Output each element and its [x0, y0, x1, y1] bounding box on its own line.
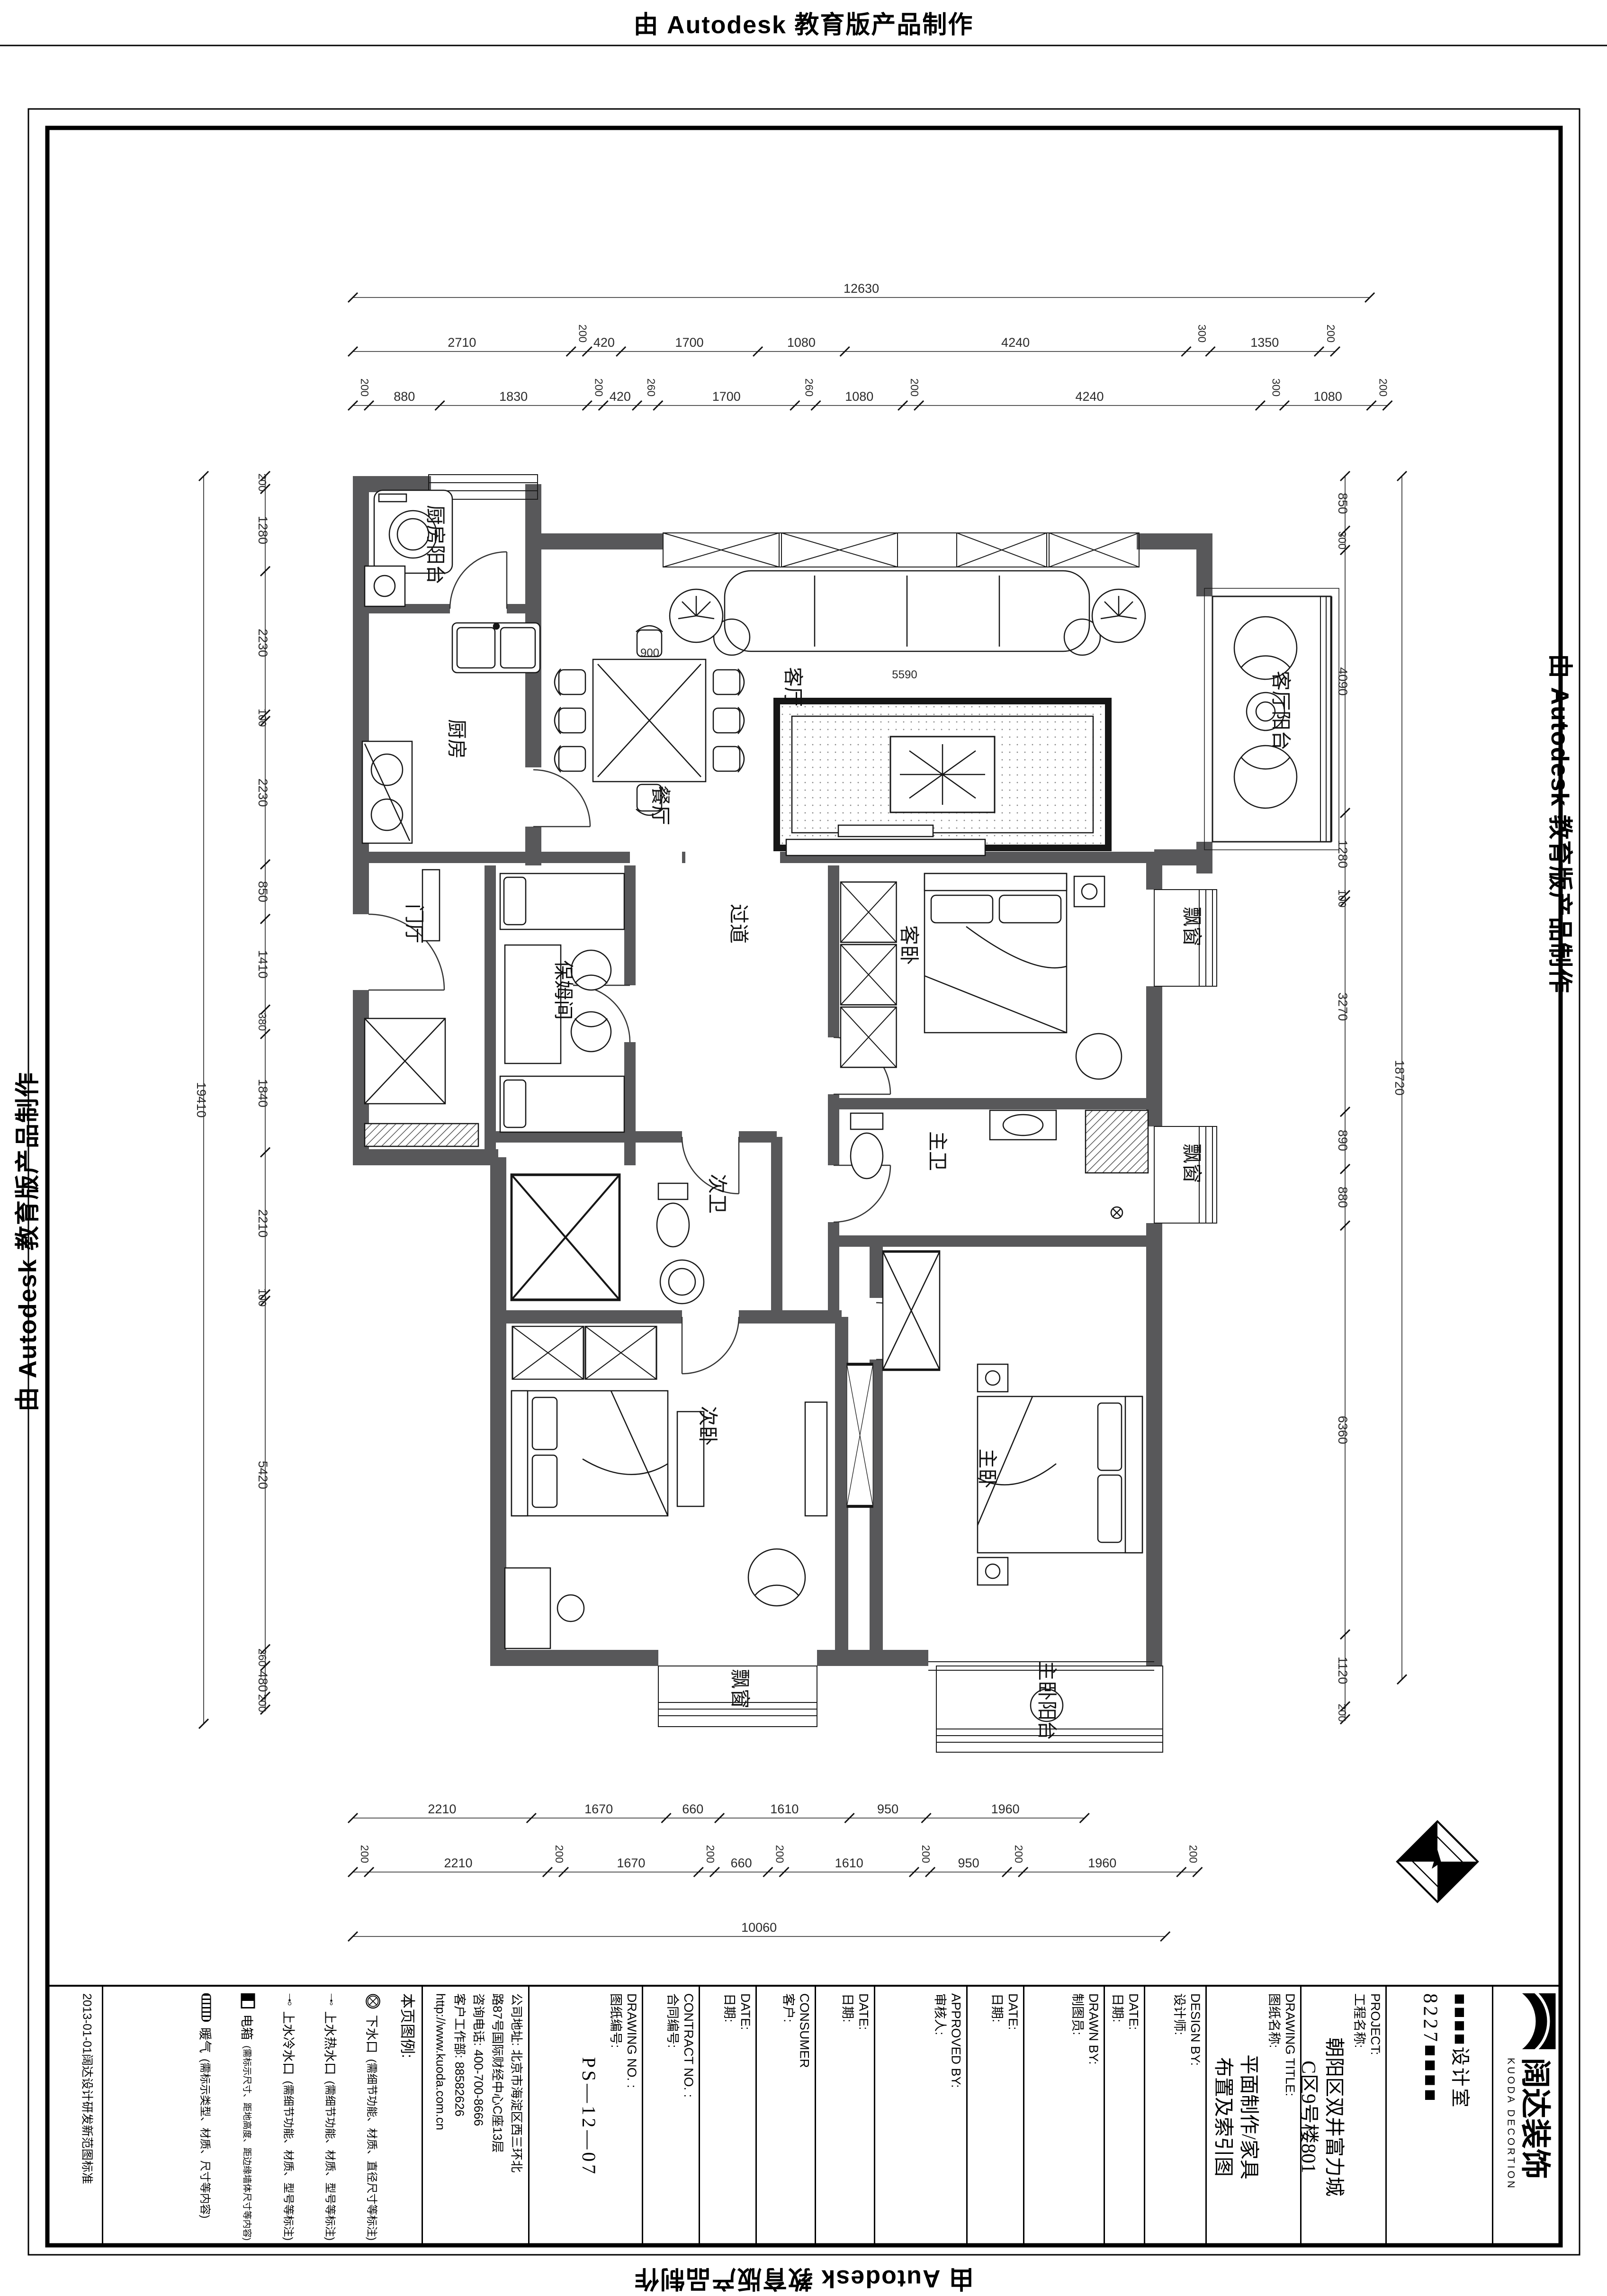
svg-text:200: 200 — [256, 1694, 269, 1712]
svg-text:660: 660 — [731, 1856, 752, 1870]
compass-mark — [1397, 1821, 1478, 1902]
svg-text:5420: 5420 — [256, 1461, 270, 1489]
tb-studio-cell: ■■■■设计室 8227■■■■ — [1385, 1987, 1492, 2247]
plan-annotation: 900 — [640, 647, 659, 659]
room-label-master-bedroom: 主卧 — [976, 1449, 998, 1488]
svg-text:880: 880 — [394, 389, 415, 404]
room-label-bay-window-1: 飘窗 — [1181, 907, 1203, 946]
room-label-bay-window-2: 飘窗 — [1181, 1143, 1203, 1183]
second-bath-fixtures — [657, 1183, 704, 1304]
svg-text:4240: 4240 — [1001, 335, 1030, 350]
tb-approved-cell: APPROVED BY: 审核人: — [874, 1987, 966, 2247]
tb-legend-cell: 本页图例: 下水口 (需细节功能、材质、直径尺寸等标注) 上水热水口 (需细节功… — [102, 1987, 422, 2247]
svg-text:200: 200 — [553, 1845, 566, 1863]
date-label-cn: 日期: — [1110, 1993, 1126, 2241]
tb-project-cell: PROJECT: 工程名称: 朝阳区双井富力城 C区9号楼801 — [1300, 1987, 1385, 2247]
kitchen-sink — [452, 623, 540, 673]
room-label-kitchen: 厨房 — [446, 719, 468, 759]
svg-text:1700: 1700 — [712, 389, 741, 404]
room-label-dining: 餐厅 — [649, 785, 672, 825]
tb-date-cell-4: DATE: 日期: — [1104, 1987, 1144, 2247]
svg-text:850: 850 — [256, 881, 270, 902]
room-label-living: 客厅 — [782, 667, 804, 707]
title-block: 2013-01-01阔达设计研发新范图标准 本页图例: 下水口 (需细节功能、材… — [47, 1985, 1561, 2247]
design-by-label-en: DESIGN BY: — [1187, 1993, 1203, 2241]
drawing-sheet: 由 Autodesk 教育版产品制作 由 Autodesk 教育版产品制作 由 … — [0, 0, 1607, 2296]
guest-bedroom-furniture — [841, 873, 1122, 1079]
drawing-title-value-2: 布置及索引图 — [1210, 1993, 1236, 2241]
date-label-en: DATE: — [1126, 1993, 1142, 2241]
svg-text:1410: 1410 — [256, 950, 270, 979]
svg-text:1670: 1670 — [584, 1802, 613, 1816]
svg-text:2230: 2230 — [256, 778, 270, 807]
svg-text:300: 300 — [1196, 324, 1208, 342]
svg-text:260: 260 — [803, 378, 815, 396]
tb-drawing-title-cell: DRAWING TITLE: 图纸名称: 平面制作/家具 布置及索引图 — [1205, 1987, 1300, 2247]
legend-item-note: (需细节功能、材质、型号等标注) — [282, 2081, 298, 2241]
svg-text:660: 660 — [682, 1802, 703, 1816]
room-label-guest-bedroom: 客卧 — [898, 925, 920, 965]
consumer-label-cn: 客户: — [781, 1993, 797, 2241]
svg-text:2710: 2710 — [448, 335, 476, 350]
svg-text:200: 200 — [704, 1845, 717, 1863]
svg-text:200: 200 — [773, 1845, 786, 1863]
legend-item-note: (需细节功能、材质、直径尺寸等标注) — [365, 2059, 381, 2241]
svg-text:100: 100 — [256, 1288, 269, 1306]
company-phone: 咨询电话: 400-700-8666 — [469, 1993, 488, 2241]
svg-text:1610: 1610 — [770, 1802, 799, 1816]
dim-chain-left_chain: 2001280223010022308501410380184022101005… — [256, 471, 270, 1714]
svg-text:200: 200 — [1013, 1845, 1025, 1863]
room-label-living-balcony: 客厅阳台 — [1270, 671, 1292, 750]
legend-item-label: 暖气 — [197, 2027, 215, 2053]
stove — [362, 741, 412, 843]
dim-chain-bottom_mid: 2002210200167020066020016102009502001960… — [348, 1845, 1202, 1877]
studio-line-1: ■■■■设计室 — [1448, 1993, 1476, 2241]
legend-item-electric-box: 电箱 (需标示尺寸、距地高度、距边缘墙体尺寸等内容) — [227, 1993, 269, 2241]
date-label-en: DATE: — [1005, 1993, 1021, 2241]
legend-item-label: 下水口 — [364, 2015, 382, 2053]
company-address-1: 公司地址: 北京市海淀区西三环北 — [507, 1993, 526, 2241]
svg-text:4090: 4090 — [1336, 667, 1350, 696]
drain-icon — [364, 1993, 383, 2009]
dim-chain-left_total: 19410 — [194, 471, 208, 1729]
svg-text:200: 200 — [908, 378, 921, 396]
living-rug — [777, 701, 1108, 848]
svg-text:1960: 1960 — [991, 1802, 1020, 1816]
svg-text:200: 200 — [359, 378, 371, 396]
svg-text:100: 100 — [1336, 889, 1348, 907]
svg-text:4240: 4240 — [1075, 389, 1104, 404]
drawing-title-label-cn: 图纸名称: — [1266, 1993, 1282, 2241]
svg-text:850: 850 — [1336, 493, 1350, 514]
date-label-en: DATE: — [856, 1993, 872, 2241]
drawing-title-value-1: 平面制作/家具 — [1236, 1993, 1261, 2241]
svg-text:1610: 1610 — [835, 1856, 863, 1870]
drawing-no-value: PS—12—07 — [576, 1993, 601, 2241]
plan-annotation: 5590 — [892, 668, 917, 681]
svg-text:1280: 1280 — [256, 516, 270, 544]
svg-text:19410: 19410 — [194, 1082, 208, 1117]
sheet-outer-frame — [28, 109, 1580, 2255]
dim-chain-top_total: 12630 — [348, 281, 1374, 302]
kuoda-logo-icon — [1500, 1993, 1556, 2049]
drawn-label-en: DRAWN BY: — [1086, 1993, 1102, 2241]
svg-text:200: 200 — [1336, 1704, 1348, 1722]
contract-no-label-cn: 合同编号: — [664, 1993, 681, 2241]
svg-text:1700: 1700 — [675, 335, 704, 350]
room-label-second-bath: 次卫 — [706, 1174, 728, 1214]
contract-no-label-en: CONTRACT NO. : — [681, 1993, 697, 2241]
room-label-bay-window-3: 飘窗 — [729, 1669, 751, 1709]
svg-text:10060: 10060 — [741, 1920, 777, 1935]
tb-date-cell-1: DATE: 日期: — [699, 1987, 755, 2247]
sofa — [714, 571, 1100, 655]
room-label-hallway: 过道 — [727, 904, 750, 944]
project-value-1: 朝阳区双井富力城 — [1321, 1993, 1347, 2241]
tb-contract-no-cell: CONTRACT NO. : 合同编号: — [642, 1987, 699, 2247]
second-bedroom-furniture — [505, 1326, 827, 1648]
company-website: http://www.kuoda.com.cn — [431, 1993, 450, 2241]
master-bath-fixtures — [851, 1110, 1148, 1218]
dim-chain-right_total: 18720 — [1392, 471, 1407, 1684]
svg-text:300: 300 — [1336, 531, 1348, 549]
legend-item-cold-water: 上水冷水口 (需细节功能、材质、型号等标注) — [269, 1993, 311, 2241]
tb-company-cell: 公司地址: 北京市海淀区西三环北 路87号国际财经中心C座13层 咨询电话: 4… — [422, 1987, 528, 2247]
svg-text:380: 380 — [256, 1013, 269, 1031]
legend-item-note: (需细节功能、材质、型号等标注) — [323, 2081, 340, 2241]
dim-chain-bottom_outer: 2210167066016109501960 — [348, 1802, 1089, 1823]
tb-drawing-no-cell: DRAWING NO. : 图纸编号: PS—12—07 — [528, 1987, 642, 2247]
svg-text:3270: 3270 — [1336, 992, 1350, 1021]
svg-text:420: 420 — [593, 335, 615, 350]
approved-label-en: APPROVED BY: — [948, 1993, 964, 2241]
svg-text:1670: 1670 — [617, 1856, 645, 1870]
svg-text:12630: 12630 — [844, 281, 879, 296]
tb-consumer-cell: CONSUMER 客户: — [755, 1987, 815, 2247]
svg-text:1830: 1830 — [499, 389, 528, 404]
legend-item-radiator: 暖气 (需标示类型、材质、尺寸等内容) — [186, 1993, 227, 2241]
svg-text:1080: 1080 — [845, 389, 873, 404]
room-label-master-bath: 主卫 — [926, 1131, 949, 1171]
svg-text:2210: 2210 — [256, 1209, 270, 1237]
master-bedroom-furniture — [883, 1252, 1142, 1585]
tb-date-cell-3: DATE: 日期: — [966, 1987, 1023, 2247]
svg-text:1120: 1120 — [1336, 1657, 1350, 1684]
date-label-cn: 日期: — [840, 1993, 856, 2241]
svg-text:1350: 1350 — [1250, 335, 1279, 350]
svg-text:200: 200 — [577, 324, 589, 342]
room-label-kitchen-balcony: 厨房阳台 — [424, 505, 447, 585]
logo-name-en: KUODA DECORTION — [1505, 2058, 1517, 2190]
legend-item-note: (需标示类型、材质、尺寸等内容) — [198, 2059, 215, 2218]
svg-text:2210: 2210 — [428, 1802, 456, 1816]
date-label-en: DATE: — [737, 1993, 754, 2241]
tb-drawn-cell: DRAWN BY: 制图员: — [1023, 1987, 1104, 2247]
tb-date-cell-2: DATE: 日期: — [815, 1987, 874, 2247]
svg-text:880: 880 — [1336, 1187, 1350, 1208]
logo-name-cn: 阔达装饰 — [1519, 2058, 1551, 2190]
svg-text:1280: 1280 — [1336, 840, 1350, 868]
room-label-master-balcony: 主卧阳台 — [1036, 1661, 1058, 1740]
svg-text:260: 260 — [645, 378, 657, 396]
approved-label-cn: 审核人: — [932, 1993, 948, 2241]
svg-text:950: 950 — [877, 1802, 898, 1816]
svg-text:2230: 2230 — [256, 629, 270, 657]
company-address-2: 路87号国际财经中心C座13层 — [488, 1993, 507, 2241]
svg-text:200: 200 — [1377, 378, 1390, 396]
drawing-no-label-en: DRAWING NO. : — [624, 1993, 640, 2241]
legend-item-label: 上水冷水口 — [280, 2011, 299, 2075]
room-label-foyer: 门厅 — [403, 904, 425, 944]
tb-logo-cell: 阔达装饰 KUODA DECORTION — [1492, 1987, 1561, 2247]
svg-text:300: 300 — [1270, 378, 1282, 396]
tb-design-by-cell: DESIGN BY: 设计师: — [1144, 1987, 1205, 2247]
room-label-nanny: 保姆间 — [552, 960, 575, 1020]
legend-item-label: 上水热水口 — [322, 2011, 341, 2075]
svg-text:100: 100 — [256, 709, 269, 727]
dim-chain-top_mid: 27102004201700108042403001350200 — [348, 324, 1340, 356]
room-label-second-bedroom: 次卧 — [697, 1406, 719, 1446]
studio-line-2: 8227■■■■ — [1419, 1993, 1442, 2241]
dim-chain-top_inner: 2008801830200420260170026010802004240300… — [348, 378, 1392, 410]
electric-box-icon — [241, 1993, 255, 2008]
svg-text:890: 890 — [1336, 1130, 1350, 1151]
svg-text:18720: 18720 — [1392, 1060, 1407, 1096]
legend-item-note: (需标示尺寸、距地高度、距边缘墙体尺寸等内容) — [242, 2045, 254, 2241]
legend-item-hot-water: 上水热水口 (需细节功能、材质、型号等标注) — [311, 1993, 352, 2241]
svg-text:480: 480 — [256, 1671, 270, 1692]
project-value-2: C区9号楼801 — [1295, 1993, 1321, 2241]
company-dept: 客户工作部: 88582626 — [450, 1993, 469, 2241]
date-label-cn: 日期: — [721, 1993, 737, 2241]
svg-text:2210: 2210 — [444, 1856, 472, 1870]
svg-text:1080: 1080 — [1314, 389, 1342, 404]
design-by-label-cn: 设计师: — [1171, 1993, 1187, 2241]
sheet-inner-frame — [47, 128, 1561, 2245]
tb-standard-note-cell: 2013-01-01阔达设计研发新范图标准 — [47, 1987, 102, 2247]
svg-text:260: 260 — [256, 1648, 269, 1666]
svg-text:1080: 1080 — [787, 335, 816, 350]
dim-chain-right_chain: 85030040901280100327089088063601120200 — [1336, 471, 1350, 1724]
svg-text:200: 200 — [1187, 1845, 1199, 1863]
legend-item-drain: 下水口 (需细节功能、材质、直径尺寸等标注) — [352, 1993, 394, 2241]
svg-text:6360: 6360 — [1336, 1416, 1350, 1444]
balcony-sink — [365, 566, 405, 606]
svg-text:200: 200 — [593, 378, 605, 396]
drawn-label-cn: 制图员: — [1069, 1993, 1086, 2241]
legend-title: 本页图例: — [398, 1993, 420, 2241]
hot-water-icon — [326, 1993, 337, 2006]
legend-item-label: 电箱 — [239, 2014, 257, 2040]
project-label-cn: 工程名称: — [1351, 1993, 1367, 2241]
svg-text:1960: 1960 — [1088, 1856, 1116, 1870]
svg-text:200: 200 — [1325, 324, 1337, 342]
floor-plan-canvas: 厨房阳台 厨房 餐厅 客厅 客厅阳台 门厅 过道 保姆间 客卧 主卫 次卫 次卧… — [0, 0, 1607, 2296]
cold-water-icon — [284, 1993, 296, 2006]
date-label-cn: 日期: — [989, 1993, 1005, 2241]
svg-text:200: 200 — [359, 1845, 371, 1863]
svg-text:420: 420 — [610, 389, 631, 404]
project-label-en: PROJECT: — [1367, 1993, 1383, 2241]
standard-note: 2013-01-01阔达设计研发新范图标准 — [79, 1993, 96, 2241]
svg-text:200: 200 — [920, 1845, 932, 1863]
dim-chain-bottom_total: 10060 — [348, 1920, 1170, 1941]
consumer-label-en: CONSUMER — [797, 1993, 813, 2241]
radiator-icon — [202, 1993, 211, 2022]
drawing-no-label-cn: 图纸编号: — [608, 1993, 624, 2241]
svg-text:950: 950 — [958, 1856, 979, 1870]
svg-text:200: 200 — [256, 473, 269, 491]
svg-text:1840: 1840 — [256, 1079, 270, 1107]
